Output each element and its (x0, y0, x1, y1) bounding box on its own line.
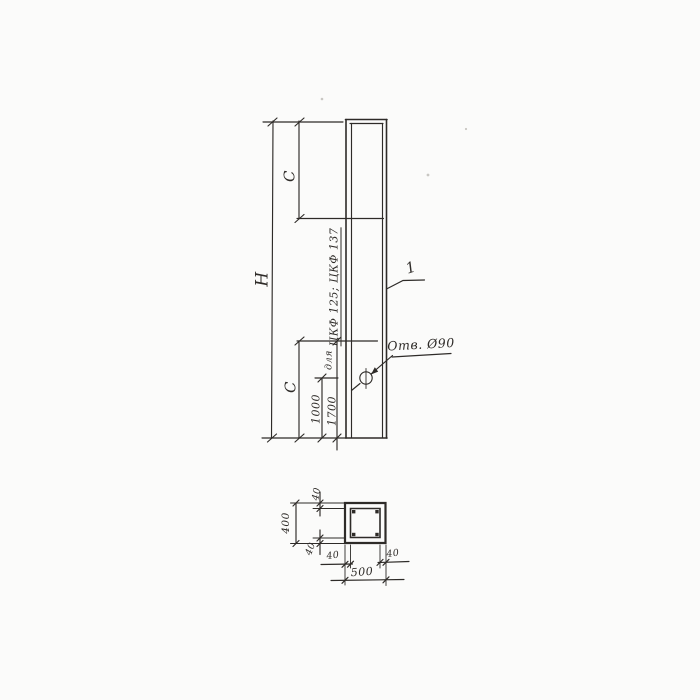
dim-label-1700: 1700 (327, 396, 338, 426)
note-prefix-dlya: для (324, 350, 334, 370)
dim-label-40-right: 40 (386, 548, 400, 559)
dim-label-1000: 1000 (311, 394, 322, 424)
dim-label-400: 400 (281, 512, 292, 534)
dim-label-C-bottom: C (284, 381, 299, 393)
elevation-view (262, 118, 451, 450)
dim-label-500: 500 (350, 566, 373, 579)
dim-label-40-left: 40 (326, 550, 340, 561)
part-leader (387, 280, 425, 289)
hole-callout (352, 354, 452, 391)
corner-rebar-dots (352, 510, 379, 536)
drawing-linework (0, 0, 700, 700)
dim-label-C-top: C (283, 170, 298, 182)
drawing-sheet: H C C 1000 1700 для ЦКФ 125; ЦКФ 137 Отв… (0, 0, 700, 700)
note-marks: ЦКФ 125; ЦКФ 137 (329, 228, 342, 347)
dim-label-H: H (255, 271, 272, 286)
dim-label-40-top: 40 (311, 487, 323, 502)
scan-specks (321, 98, 467, 177)
